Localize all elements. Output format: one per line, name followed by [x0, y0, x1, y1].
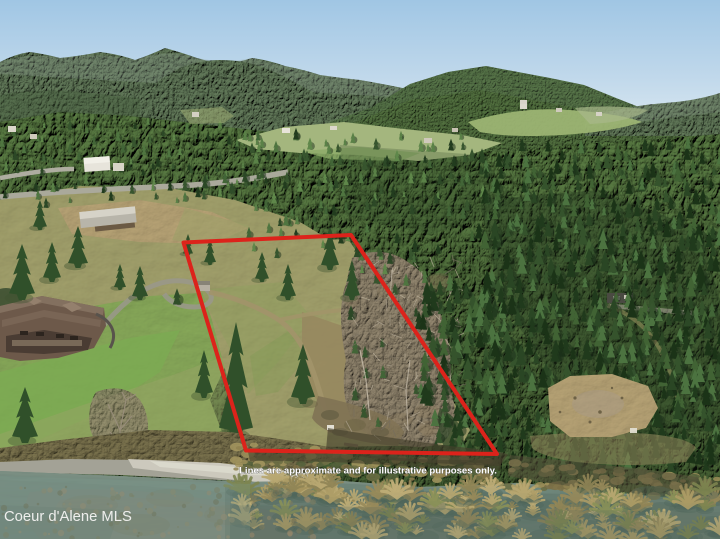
svg-text:Lines are approximate and for: Lines are approximate and for illustrati…: [239, 466, 497, 477]
svg-text:Coeur d'Alene MLS: Coeur d'Alene MLS: [4, 509, 132, 525]
